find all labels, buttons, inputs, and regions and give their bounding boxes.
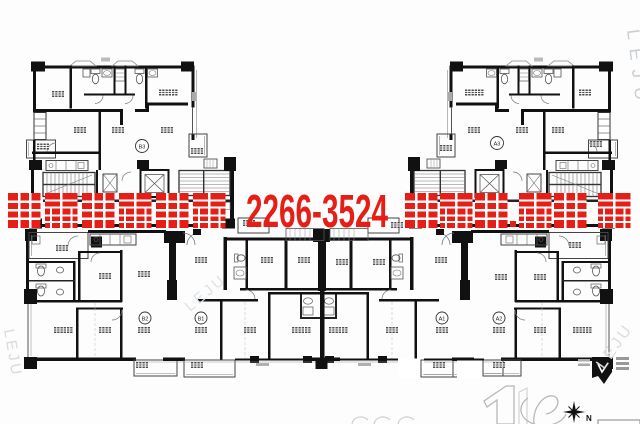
svg-text:LEJU: LEJU [593, 321, 636, 373]
svg-text:2266-3524: 2266-3524 [246, 185, 388, 237]
svg-text:A2: A2 [496, 316, 503, 322]
svg-text:LEJU: LEJU [0, 328, 25, 379]
svg-text:A1: A1 [439, 316, 446, 322]
svg-text:B2: B2 [142, 316, 149, 322]
svg-text:LEJU: LEJU [182, 271, 230, 315]
svg-text:B3: B3 [139, 144, 146, 150]
svg-text:N: N [586, 414, 592, 423]
svg-text:A3: A3 [494, 141, 501, 147]
svg-text:LEJU: LEJU [623, 28, 640, 110]
svg-text:B1: B1 [198, 316, 205, 322]
